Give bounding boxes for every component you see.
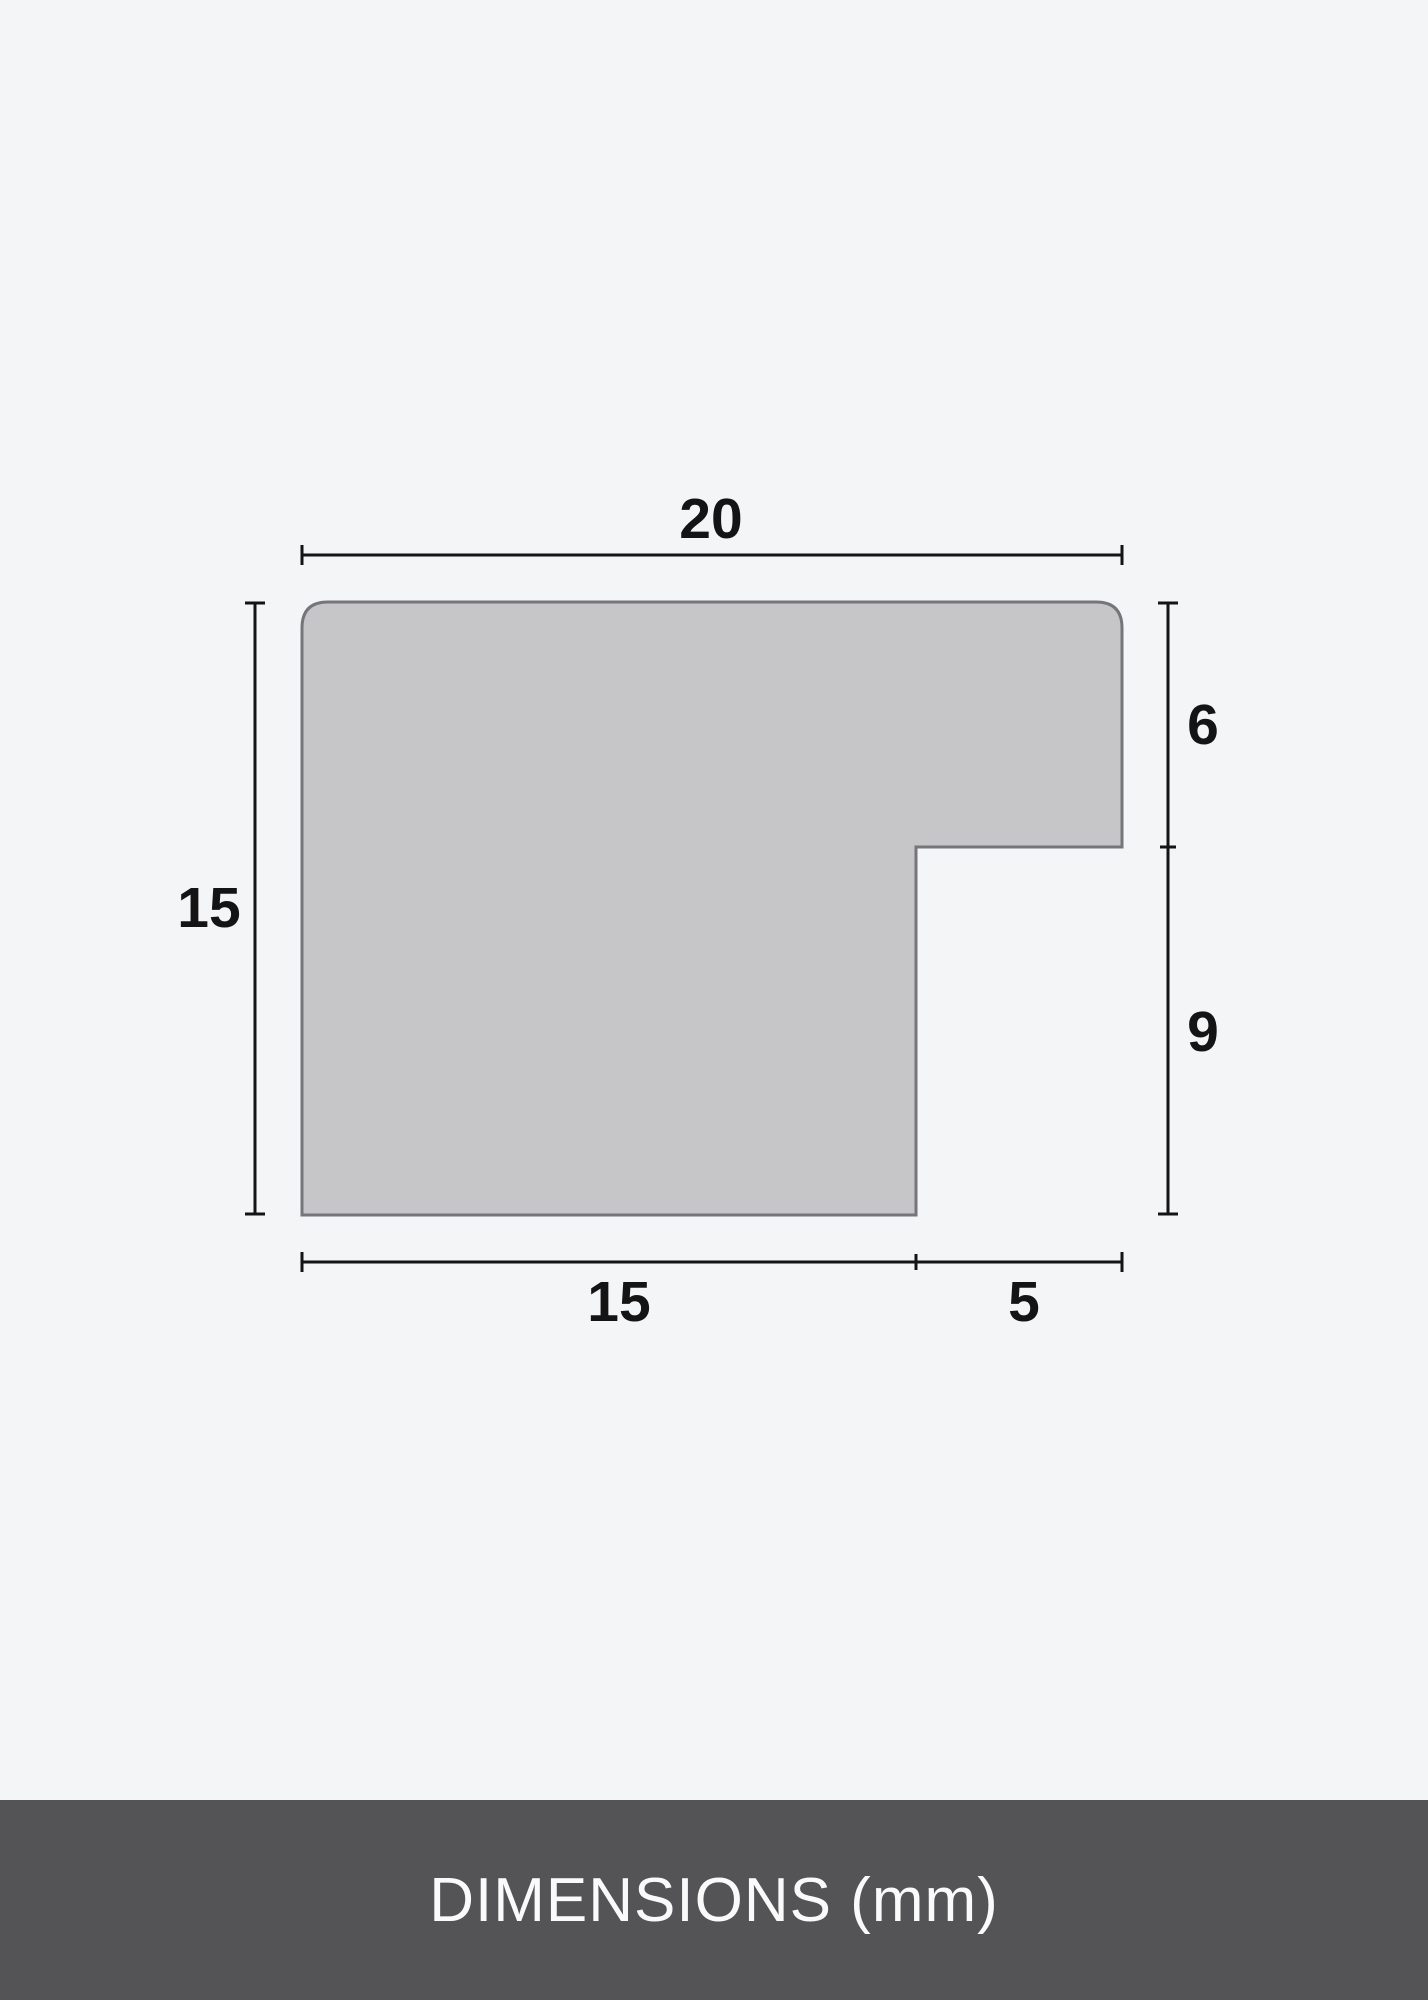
dimension-top-width: 20 (302, 487, 1122, 565)
footer-title: DIMENSIONS (mm) (429, 1865, 999, 1936)
dimension-bottom-widths: 15 5 (302, 1252, 1122, 1334)
profile-cross-section-svg: 20 15 6 9 15 5 (0, 0, 1428, 1800)
dim-label-bottom-right: 5 (1008, 1270, 1040, 1334)
footer-bar: DIMENSIONS (mm) (0, 1800, 1428, 2000)
dim-label-bottom-left: 15 (587, 1270, 650, 1334)
dim-label-top-width: 20 (679, 487, 742, 551)
dim-label-right-upper: 6 (1187, 693, 1219, 757)
dimension-diagram-page: 20 15 6 9 15 5 DIMENSIONS (0, 0, 1428, 2000)
dim-label-right-lower: 9 (1187, 1000, 1219, 1064)
moulding-profile-shape (302, 602, 1122, 1215)
dimension-right-depths: 6 9 (1158, 603, 1219, 1214)
dimension-left-height: 15 (177, 603, 265, 1214)
dim-label-left-height: 15 (177, 876, 240, 940)
